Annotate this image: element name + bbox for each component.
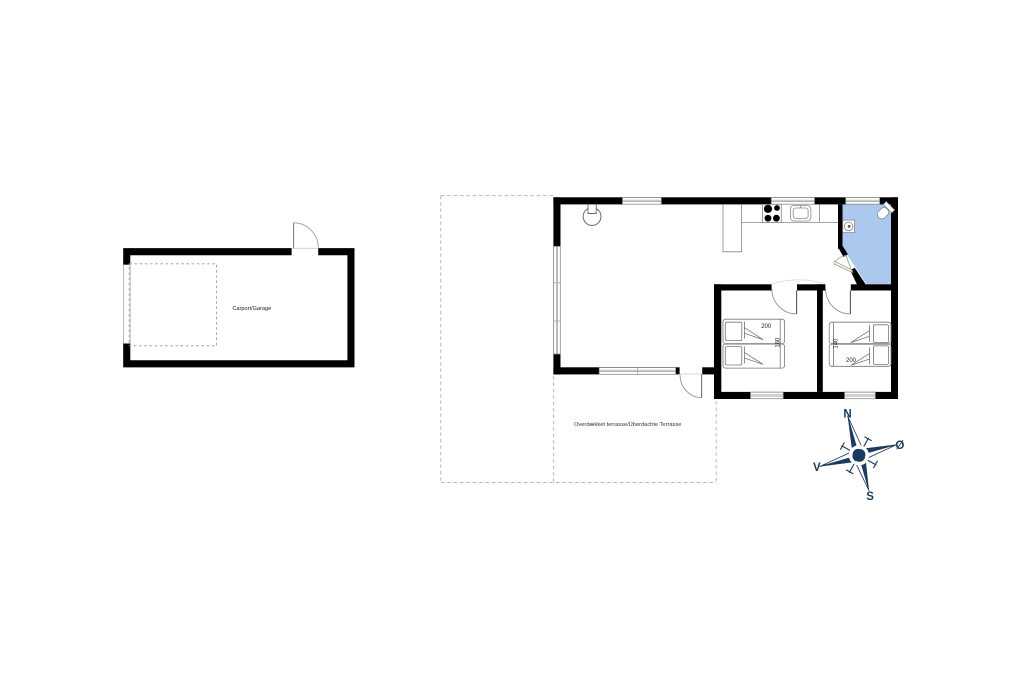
svg-text:200: 200 — [761, 324, 772, 330]
svg-text:160: 160 — [776, 337, 782, 348]
svg-text:V: V — [813, 462, 821, 474]
svg-text:N: N — [843, 409, 851, 421]
svg-text:140: 140 — [834, 338, 840, 349]
svg-text:Carport/Garage: Carport/Garage — [232, 306, 271, 312]
svg-text:S: S — [866, 491, 874, 503]
svg-text:Overdækket terrasse/Überdachte: Overdækket terrasse/Überdachte Terrasse — [574, 421, 681, 428]
svg-text:Ø: Ø — [895, 440, 904, 452]
svg-text:200: 200 — [846, 358, 857, 364]
